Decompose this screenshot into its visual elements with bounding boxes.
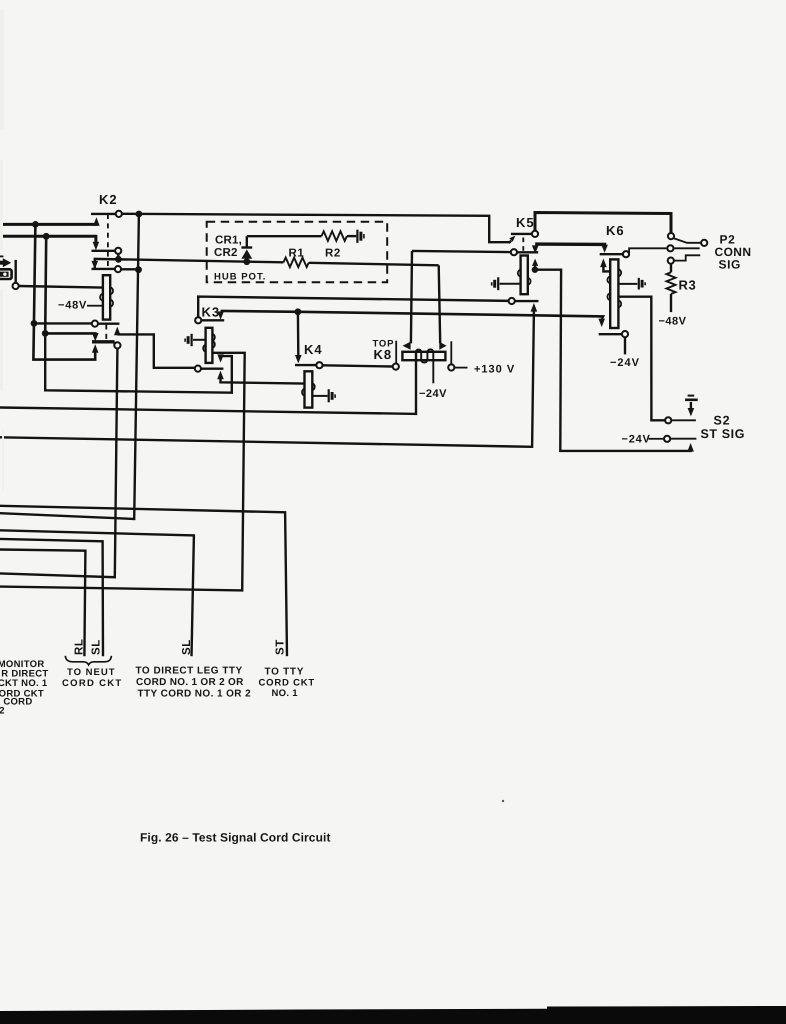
svg-text:S2: S2 — [714, 414, 731, 428]
svg-text:−48V: −48V — [659, 316, 687, 328]
svg-text:TO DIRECT LEG TTY: TO DIRECT LEG TTY — [136, 666, 243, 677]
svg-text:K4: K4 — [304, 342, 323, 357]
svg-text:TO TTY: TO TTY — [265, 667, 305, 678]
svg-text:ST: ST — [275, 639, 287, 655]
svg-text:+130 V: +130 V — [474, 364, 515, 376]
svg-text:NO. 1: NO. 1 — [272, 688, 299, 699]
svg-text:K3: K3 — [202, 305, 221, 320]
svg-text:CORD NO. 1 OR 2 OR: CORD NO. 1 OR 2 OR — [136, 677, 244, 688]
svg-text:CR1,: CR1, — [215, 235, 242, 247]
svg-text:−24V: −24V — [419, 388, 447, 400]
svg-text:HUB POT.: HUB POT. — [214, 272, 266, 283]
svg-text:ST SIG: ST SIG — [701, 427, 746, 441]
svg-text:R2: R2 — [325, 248, 341, 260]
svg-text:−48V: −48V — [58, 300, 87, 312]
svg-text:K8: K8 — [374, 347, 393, 362]
svg-text:R1: R1 — [289, 248, 305, 260]
svg-text:TTY CORD NO. 1 OR 2: TTY CORD NO. 1 OR 2 — [138, 689, 252, 700]
svg-text:SIG: SIG — [719, 258, 741, 272]
svg-text:RL: RL — [74, 638, 86, 655]
svg-text:2: 2 — [0, 706, 5, 717]
svg-text:CORD CKT: CORD CKT — [62, 678, 123, 689]
svg-text:K2: K2 — [99, 192, 118, 207]
svg-text:−24V: −24V — [622, 434, 651, 446]
svg-text:CORD: CORD — [3, 697, 32, 708]
svg-text:−24V: −24V — [610, 357, 640, 369]
svg-text:K5: K5 — [516, 215, 535, 230]
svg-text:TO NEUT: TO NEUT — [67, 667, 116, 678]
svg-text:SL: SL — [91, 639, 103, 655]
svg-text:R3: R3 — [679, 278, 697, 293]
svg-text:CORD CKT: CORD CKT — [259, 678, 316, 689]
svg-text:SL: SL — [181, 639, 193, 655]
svg-text:K6: K6 — [606, 223, 625, 238]
svg-text:CR2: CR2 — [214, 247, 238, 259]
svg-text:Fig. 26 – Test Signal Cord Ci: Fig. 26 – Test Signal Cord Circuit — [140, 831, 331, 845]
